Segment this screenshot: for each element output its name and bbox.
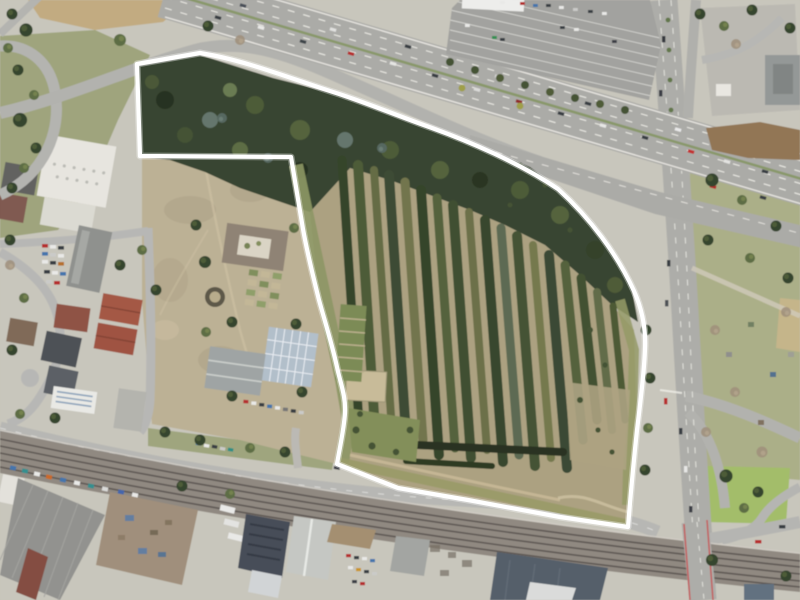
- aerial-photo-viewport: [0, 0, 800, 600]
- haze-overlay: [0, 0, 800, 600]
- aerial-photo: [0, 0, 800, 600]
- map-layers: [0, 0, 800, 600]
